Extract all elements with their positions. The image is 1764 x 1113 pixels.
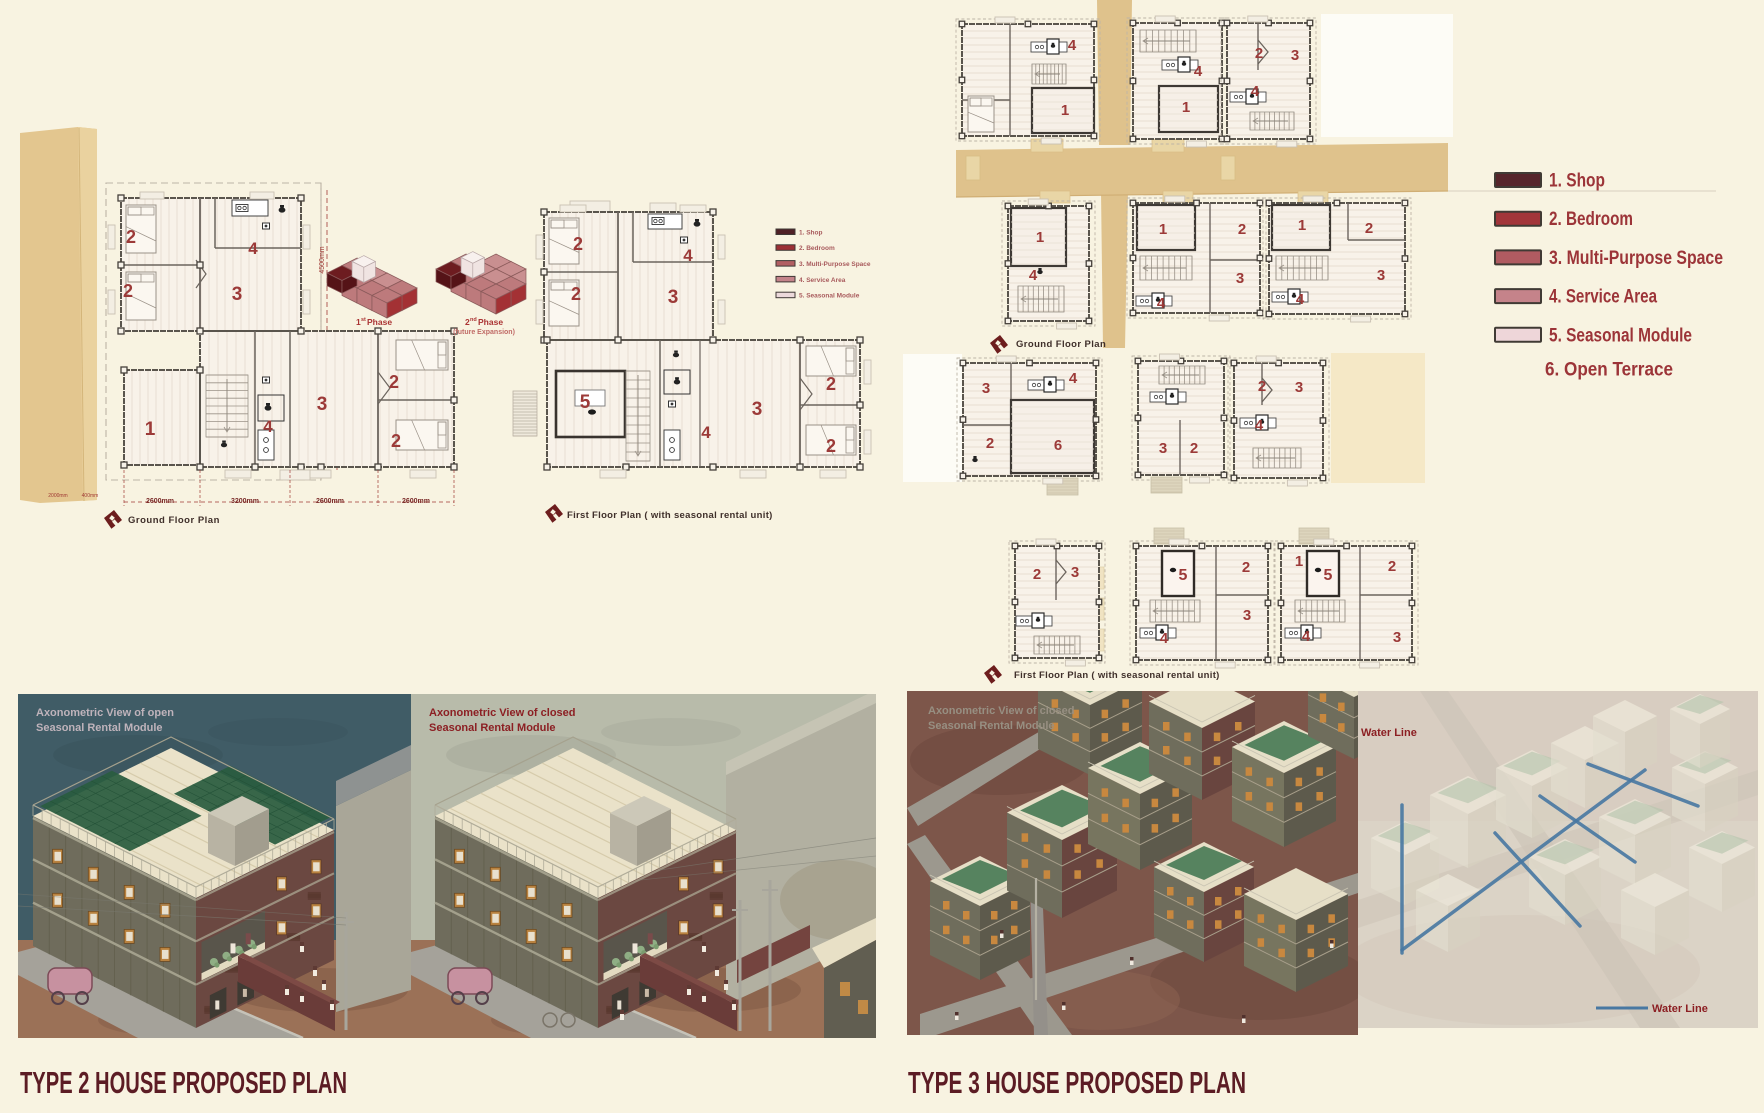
svg-text:5: 5 <box>580 392 591 413</box>
svg-text:nd: nd <box>470 317 477 323</box>
svg-text:4: 4 <box>1029 267 1038 284</box>
svg-text:3: 3 <box>982 380 990 397</box>
svg-text:2: 2 <box>826 436 836 456</box>
svg-text:2: 2 <box>1190 440 1198 457</box>
svg-text:1: 1 <box>1295 553 1303 570</box>
svg-text:3: 3 <box>1377 267 1385 284</box>
svg-text:400mm: 400mm <box>82 493 99 499</box>
svg-text:3. Multi-Purpose Space: 3. Multi-Purpose Space <box>1549 248 1723 269</box>
svg-text:Seasonal Rental Module: Seasonal Rental Module <box>36 722 163 734</box>
svg-text:5. Seasonal Module: 5. Seasonal Module <box>1549 325 1692 346</box>
svg-text:2. Bedroom: 2. Bedroom <box>1549 209 1633 230</box>
svg-text:2: 2 <box>126 227 136 247</box>
svg-text:1. Shop: 1. Shop <box>1549 171 1605 192</box>
svg-text:3: 3 <box>1159 440 1167 457</box>
svg-text:4: 4 <box>1296 291 1305 308</box>
svg-text:6: 6 <box>1054 437 1062 454</box>
svg-text:4: 4 <box>1302 628 1311 645</box>
svg-text:3: 3 <box>317 394 328 415</box>
svg-text:2: 2 <box>573 234 583 254</box>
svg-text:2000mm: 2000mm <box>48 493 67 499</box>
svg-text:1: 1 <box>1061 102 1069 119</box>
svg-text:4: 4 <box>1069 370 1078 387</box>
svg-text:Water Line: Water Line <box>1361 727 1417 739</box>
svg-text:Axonometric View of closed: Axonometric View of closed <box>928 705 1075 717</box>
svg-text:3: 3 <box>752 399 763 420</box>
svg-text:3: 3 <box>232 284 243 305</box>
svg-text:1: 1 <box>1159 221 1167 238</box>
svg-text:2: 2 <box>1033 566 1041 583</box>
svg-text:4: 4 <box>701 423 711 442</box>
svg-text:4: 4 <box>1068 37 1077 54</box>
svg-text:First Floor Plan ( with season: First Floor Plan ( with seasonal rental … <box>1014 670 1220 681</box>
svg-text:2: 2 <box>826 374 836 394</box>
svg-text:TYPE 2 HOUSE PROPOSED PLAN: TYPE 2 HOUSE PROPOSED PLAN <box>20 1065 347 1100</box>
svg-text:4: 4 <box>1157 295 1166 312</box>
svg-text:First Floor Plan ( with season: First Floor Plan ( with seasonal rental … <box>567 510 773 521</box>
svg-text:3: 3 <box>1236 270 1244 287</box>
svg-text:2600mm: 2600mm <box>146 498 174 505</box>
svg-text:Axonometric View of closed: Axonometric View of closed <box>429 707 576 719</box>
svg-text:Phase: Phase <box>478 317 503 327</box>
svg-text:3: 3 <box>668 287 679 308</box>
svg-text:3: 3 <box>1295 379 1303 396</box>
svg-text:3200mm: 3200mm <box>231 498 259 505</box>
svg-text:Ground Floor Plan: Ground Floor Plan <box>128 515 220 526</box>
svg-text:Seasonal Rental Module: Seasonal Rental Module <box>429 722 556 734</box>
svg-text:2: 2 <box>1238 221 1246 238</box>
svg-text:Axonometric View of open: Axonometric View of open <box>36 707 174 719</box>
svg-text:1. Shop: 1. Shop <box>799 229 823 236</box>
svg-text:3: 3 <box>1071 564 1079 581</box>
svg-text:1: 1 <box>1298 217 1306 234</box>
svg-text:2: 2 <box>1388 558 1396 575</box>
svg-text:5: 5 <box>1324 567 1333 584</box>
svg-text:3. Multi-Purpose Space: 3. Multi-Purpose Space <box>799 261 871 268</box>
svg-text:2: 2 <box>571 284 581 304</box>
svg-text:4. Service Area: 4. Service Area <box>1549 287 1657 308</box>
svg-text:2: 2 <box>123 281 133 301</box>
svg-text:4: 4 <box>1194 63 1203 80</box>
svg-text:4: 4 <box>263 417 273 436</box>
svg-text:4: 4 <box>248 239 258 258</box>
svg-text:4: 4 <box>1255 417 1264 434</box>
svg-text:2: 2 <box>1258 378 1266 395</box>
svg-text:Water Line: Water Line <box>1652 1003 1708 1015</box>
svg-text:4: 4 <box>683 246 693 265</box>
svg-text:2. Bedroom: 2. Bedroom <box>799 245 835 252</box>
svg-text:4. Service Area: 4. Service Area <box>799 277 846 284</box>
svg-text:Seasonal Rental Module: Seasonal Rental Module <box>928 720 1055 732</box>
svg-text:3: 3 <box>1393 629 1401 646</box>
svg-text:1: 1 <box>1182 99 1190 116</box>
svg-text:2600mm: 2600mm <box>402 498 430 505</box>
svg-text:2: 2 <box>986 435 994 452</box>
svg-text:4: 4 <box>1160 630 1169 647</box>
svg-text:5: 5 <box>1179 567 1188 584</box>
svg-text:2: 2 <box>1365 220 1373 237</box>
svg-text:1: 1 <box>1036 229 1044 246</box>
svg-text:2: 2 <box>389 372 399 392</box>
svg-text:st: st <box>361 317 366 323</box>
svg-text:4500mm: 4500mm <box>319 246 326 273</box>
svg-text:3: 3 <box>1243 607 1251 624</box>
svg-text:Phase: Phase <box>367 317 392 327</box>
svg-text:(future Expansion): (future Expansion) <box>453 329 515 336</box>
svg-text:2600mm: 2600mm <box>316 498 344 505</box>
svg-text:2: 2 <box>1242 559 1250 576</box>
svg-text:4: 4 <box>1251 83 1260 100</box>
svg-text:2: 2 <box>1255 45 1263 62</box>
svg-text:TYPE 3 HOUSE PROPOSED PLAN: TYPE 3 HOUSE PROPOSED PLAN <box>908 1065 1246 1100</box>
svg-text:Ground Floor Plan: Ground Floor Plan <box>1016 339 1106 350</box>
svg-text:2: 2 <box>391 431 401 451</box>
svg-text:1: 1 <box>145 419 156 440</box>
svg-text:3: 3 <box>1291 47 1299 64</box>
svg-text:5. Seasonal Module: 5. Seasonal Module <box>799 293 860 300</box>
svg-text:6. Open Terrace: 6. Open Terrace <box>1545 360 1673 381</box>
